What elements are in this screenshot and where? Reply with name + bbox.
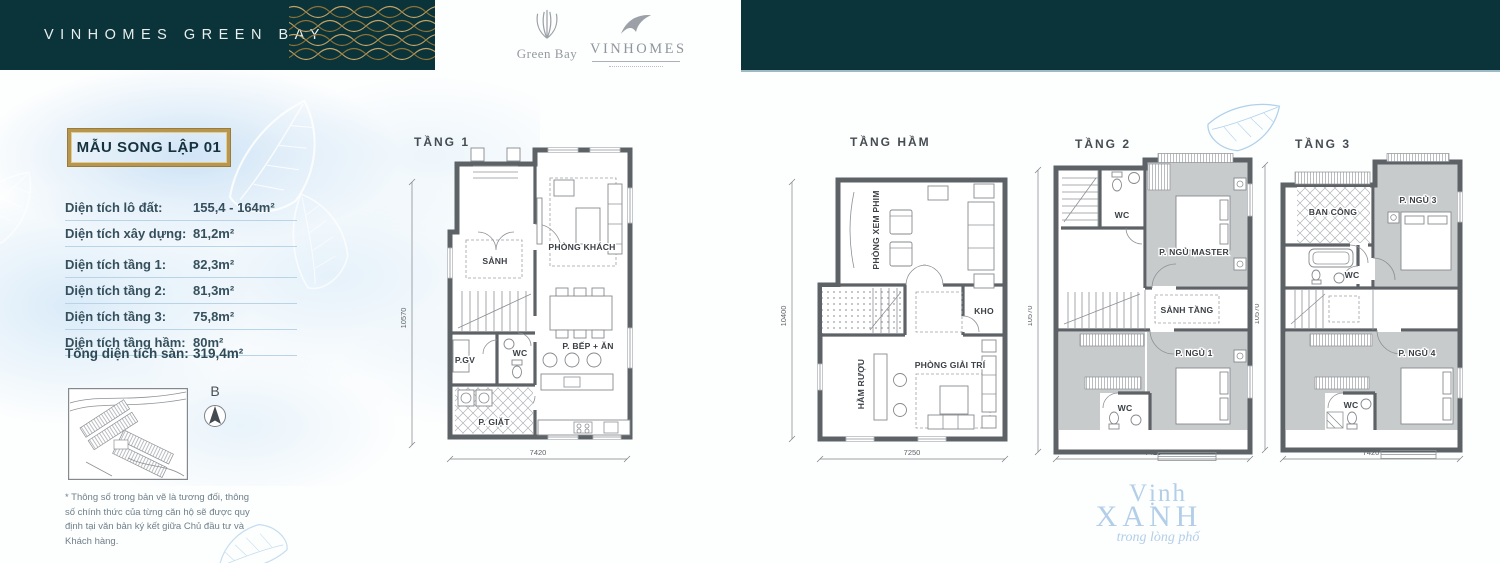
model-title-badge: MẪU SONG LẬP 01 bbox=[68, 129, 230, 166]
vinh-xanh-watermark: Vịnh XANH trong lòng phố bbox=[1083, 480, 1233, 546]
spec-row: Diện tích tầng 3: 75,8m² bbox=[65, 306, 297, 330]
spec-row: Diện tích tầng 2: 81,3m² bbox=[65, 280, 297, 304]
floorplan-tang-3: TẦNG 3 10570 7420 BAN CÔNG P. NGỦ 3 bbox=[1255, 128, 1485, 473]
vinhomes-logo: VINHOMES bbox=[590, 13, 682, 67]
floor-title: TẦNG 2 bbox=[1075, 136, 1131, 151]
dim-width: 7250 bbox=[904, 448, 921, 457]
room-label-ngu-1: P. NGỦ 1 bbox=[1175, 347, 1212, 358]
spec-row: Diện tích tầng 1: 82,3m² bbox=[65, 254, 297, 278]
spec-row: Diện tích xây dựng: 81,2m² bbox=[65, 223, 297, 247]
room-label-ham-ruou: HẦM RƯỢU bbox=[856, 359, 866, 409]
window-rail bbox=[1158, 154, 1233, 163]
north-compass: B bbox=[200, 383, 230, 435]
floor-title: TẦNG HẦM bbox=[850, 134, 931, 149]
green-bay-logo-icon bbox=[527, 9, 567, 41]
green-bay-logo: Green Bay bbox=[514, 9, 580, 62]
room-label-giai-tri: PHÒNG GIẢI TRÍ bbox=[915, 359, 986, 370]
window-rail bbox=[1387, 154, 1449, 162]
room-label-sanh-tang: SẢNH TẦNG bbox=[1161, 304, 1214, 315]
floor-title: TẦNG 3 bbox=[1295, 136, 1351, 151]
room-label-kho: KHO bbox=[974, 306, 994, 316]
room-label-wc-top: WC bbox=[1115, 210, 1130, 220]
room-label-ban-cong: BAN CÔNG bbox=[1309, 206, 1358, 217]
dim-height: 10400 bbox=[779, 306, 788, 327]
wardrobe bbox=[1315, 377, 1369, 389]
room-label-bep-an: P. BẾP + ĂN bbox=[562, 341, 613, 351]
brochure-page: VINHOMES GREEN BAY Gr bbox=[0, 0, 1500, 563]
site-location-map bbox=[68, 388, 188, 480]
model-title: MẪU SONG LẬP 01 bbox=[77, 139, 222, 156]
gold-wave-pattern bbox=[289, 0, 435, 70]
green-bay-logo-label: Green Bay bbox=[514, 46, 580, 62]
room-label-wc-mid: WC bbox=[1345, 270, 1360, 280]
room-label-xem-phim: PHÒNG XEM PHIM bbox=[870, 190, 881, 269]
balcony-rail bbox=[1295, 172, 1370, 184]
floorplan-tang-2: TẦNG 2 10570 7420 WC bbox=[1028, 128, 1263, 473]
vinhomes-logo-rule bbox=[592, 61, 680, 62]
room-label-ngu-4: P. NGỦ 4 bbox=[1398, 347, 1435, 358]
dim-width: 7420 bbox=[530, 448, 547, 457]
disclaimer-note: * Thông số trong bản vẽ là tương đối, th… bbox=[65, 491, 255, 550]
room-label-master: P. NGỦ MASTER bbox=[1159, 246, 1229, 257]
dim-height: 10570 bbox=[1028, 306, 1034, 327]
leaf-decoration bbox=[0, 148, 56, 267]
room-label-p-giat: P. GIẶT bbox=[478, 417, 510, 427]
room-label-sanh: SẢNH bbox=[482, 255, 507, 266]
vinhomes-logo-label: VINHOMES bbox=[590, 41, 682, 58]
floorplan-tang-1: TẦNG 1 10570 7420 SẢNH bbox=[398, 128, 690, 473]
vinhomes-bird-icon bbox=[619, 13, 653, 36]
wardrobe bbox=[1085, 377, 1141, 389]
room-label-pgv: P.GV bbox=[455, 355, 475, 365]
compass-label: B bbox=[210, 383, 219, 399]
total-area-row: Tổng diện tích sàn: 319,4m² bbox=[65, 346, 297, 361]
floorplan-tang-ham: TẦNG HẦM 10400 7250 PHÒNG XEM PHIM KHO bbox=[778, 128, 1043, 473]
wardrobe bbox=[1080, 334, 1144, 346]
vinhomes-tagline-placeholder bbox=[609, 64, 662, 67]
dim-height: 10570 bbox=[1255, 304, 1261, 325]
room-label-wc-bottom: WC bbox=[1118, 403, 1133, 413]
header-right-bar bbox=[741, 0, 1500, 72]
spec-list-site: Diện tích lô đất: 155,4 - 164m² Diện tíc… bbox=[65, 197, 297, 249]
wardrobe bbox=[1310, 334, 1372, 346]
room-label-wc-bottom: WC bbox=[1344, 400, 1359, 410]
bedroom4-bed bbox=[1401, 368, 1453, 424]
spec-list-floors: Diện tích tầng 1: 82,3m² Diện tích tầng … bbox=[65, 254, 297, 358]
room-label-ngu-3: P. NGỦ 3 bbox=[1399, 194, 1436, 205]
stair-landing bbox=[822, 287, 903, 333]
floor-title: TẦNG 1 bbox=[414, 134, 470, 149]
room-label-phong-khach: PHÒNG KHÁCH bbox=[548, 241, 615, 252]
room-label-wc: WC bbox=[513, 348, 528, 358]
spec-row: Diện tích lô đất: 155,4 - 164m² bbox=[65, 197, 297, 221]
project-title: VINHOMES GREEN BAY bbox=[0, 27, 326, 43]
dim-height: 10570 bbox=[399, 308, 408, 329]
header-brand-bar: VINHOMES GREEN BAY bbox=[0, 0, 435, 70]
